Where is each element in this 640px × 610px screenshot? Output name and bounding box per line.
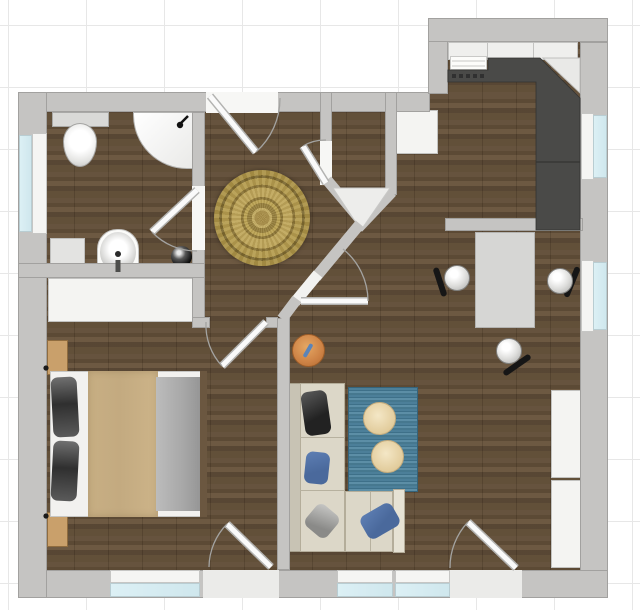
- wall-bedroom-top-left-stub: [192, 317, 210, 328]
- sofa-seam: [300, 437, 345, 438]
- bed-pillow-top: [50, 376, 79, 437]
- dining-chair-left[interactable]: [444, 265, 470, 291]
- bedroom-wardrobe-strip[interactable]: [48, 278, 197, 322]
- living-balcony-threshold: [450, 570, 522, 598]
- wall-bedroom-living-divider: [277, 318, 290, 570]
- nightstand-top[interactable]: [47, 340, 68, 375]
- round-side-table-1[interactable]: [363, 402, 396, 435]
- wall-cabinet-upper[interactable]: [551, 390, 581, 478]
- sofa-seam: [300, 490, 345, 491]
- round-side-table-2[interactable]: [371, 440, 404, 473]
- wall-kitchen-top: [428, 18, 608, 42]
- wall-nook-east: [385, 92, 397, 195]
- bathroom-window: [19, 135, 32, 232]
- bedroom-balcony-threshold: [203, 570, 279, 598]
- sofa-pillow-blue-1: [303, 451, 330, 485]
- half-wall-dining: [445, 218, 583, 231]
- right-window-lower: [593, 262, 607, 330]
- dining-table[interactable]: [475, 232, 535, 328]
- bathroom-door-opening: [192, 186, 205, 250]
- bed-footboard-edge: [200, 371, 207, 517]
- wall-bathroom-bottom: [18, 263, 205, 278]
- bedroom-window-frame: [110, 570, 200, 583]
- right-window-upper: [593, 115, 607, 178]
- living-window-2-frame: [395, 570, 450, 583]
- kitchen-sink[interactable]: [450, 56, 487, 70]
- wall-hall-east-upper: [320, 92, 332, 143]
- dining-chair-right[interactable]: [547, 268, 573, 294]
- round-oriental-rug[interactable]: [214, 170, 310, 266]
- living-window-2: [395, 583, 450, 597]
- bed-pillow-bottom: [50, 440, 79, 501]
- entrance-door-opening: [206, 92, 278, 113]
- dining-chair-bottom[interactable]: [496, 338, 522, 364]
- white-wardrobe[interactable]: [396, 110, 438, 154]
- wall-cabinet-lower[interactable]: [551, 480, 581, 568]
- floor-plan-canvas: [0, 0, 640, 610]
- bedroom-window: [110, 583, 200, 597]
- living-window-1-frame: [337, 570, 393, 583]
- bed-duvet: [88, 371, 158, 517]
- cabinet-divider: [533, 42, 534, 60]
- living-window-1: [337, 583, 393, 597]
- hall-door-opening: [320, 141, 332, 185]
- cabinet-divider: [487, 42, 488, 60]
- nightstand-bottom[interactable]: [47, 512, 68, 547]
- wall-bathroom-right-lower: [192, 248, 205, 318]
- wall-bathroom-right-upper: [192, 112, 205, 188]
- bed-blanket: [156, 377, 200, 511]
- bathroom-window-frame: [32, 133, 47, 234]
